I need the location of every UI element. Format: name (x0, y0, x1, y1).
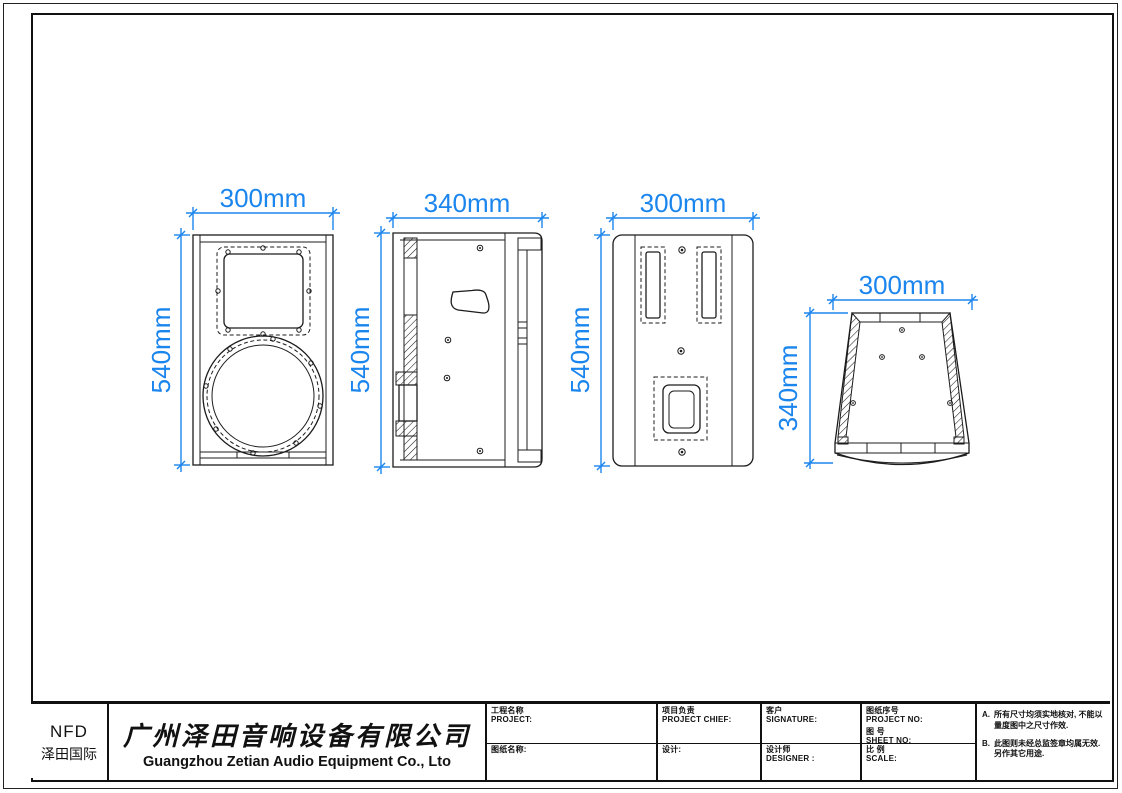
cabinet-drawing-canvas: 300mm 540mm (0, 0, 1122, 793)
back-height-label: 540mm (565, 307, 595, 394)
back-height-dimension: 540mm (565, 228, 610, 473)
side-width-dimension: 340mm (386, 188, 549, 228)
woofer-opening (203, 336, 323, 456)
logo-cell: NFD 泽田国际 (31, 704, 107, 781)
top-handle-recess (880, 313, 920, 322)
client-label-en: SIGNATURE: (766, 715, 856, 724)
title-block: NFD 泽田国际 广州泽田音响设备有限公司 Guangzhou Zetian A… (31, 701, 1110, 778)
bottom-screw-holes (851, 328, 953, 406)
design-label: 设计: (662, 745, 756, 754)
back-width-dimension: 300mm (606, 188, 760, 230)
front-width-dimension: 300mm (186, 183, 340, 230)
drawing-no-label-cn: 图纸序号 (866, 706, 971, 715)
drawing-name-label: 图纸名称: (491, 745, 652, 754)
designer-label-cn: 设计师 (766, 745, 856, 754)
number-cell: 图纸序号 PROJECT NO: 图 号 SHEET NO: 比 例 SCALE… (860, 704, 975, 781)
note-a-text: 所有尺寸均须实地核对, 不能以量度图中之尺寸作效. (994, 710, 1105, 732)
note-a: A. 所有尺寸均须实地核对, 不能以量度图中之尺寸作效. (982, 710, 1105, 732)
brand-name: NFD (50, 722, 88, 742)
horn-opening (216, 246, 311, 336)
back-width-label: 300mm (640, 188, 727, 218)
sheet-no-label-cn: 图 号 (866, 727, 971, 736)
back-view: 300mm 540mm (565, 188, 760, 473)
connector-plate (654, 377, 707, 440)
drawing-no-label-en: PROJECT NO: (866, 715, 971, 724)
port-slot-left (641, 247, 665, 323)
front-height-label: 540mm (146, 307, 176, 394)
curved-front-baffle (835, 443, 969, 463)
project-label-en: PROJECT: (491, 715, 652, 724)
front-view: 300mm 540mm (146, 183, 340, 472)
side-screw-holes (444, 245, 483, 454)
bottom-depth-dimension: 340mm (773, 307, 848, 469)
company-cell: 广州泽田音响设备有限公司 Guangzhou Zetian Audio Equi… (107, 704, 485, 781)
project-cell: 工程名称 PROJECT: 图纸名称: (485, 704, 656, 781)
bottom-depth-label: 340mm (773, 345, 803, 432)
front-width-label: 300mm (220, 183, 307, 213)
bottom-width-dimension: 300mm (827, 270, 978, 310)
chief-label-cn: 项目负责 (662, 706, 756, 715)
designer-label-en: DESIGNER : (766, 754, 856, 763)
side-width-label: 340mm (424, 188, 511, 218)
company-name-cn: 广州泽田音响设备有限公司 (123, 716, 471, 753)
back-screw-holes (678, 247, 685, 455)
chief-label-en: PROJECT CHIEF: (662, 715, 756, 724)
client-cell: 客户 SIGNATURE: 设计师 DESIGNER : (760, 704, 860, 781)
bottom-width-label: 300mm (859, 270, 946, 300)
side-height-dimension: 540mm (345, 226, 390, 474)
drawing-sheet: 300mm 540mm (0, 0, 1122, 793)
company-name-en: Guangzhou Zetian Audio Equipment Co., Lt… (143, 754, 451, 770)
front-height-dimension: 540mm (146, 228, 190, 472)
notes-cell: A. 所有尺寸均须实地核对, 不能以量度图中之尺寸作效. B. 此图则未经总监签… (975, 704, 1110, 781)
scale-label-en: SCALE: (866, 754, 971, 763)
port-slot-right (697, 247, 721, 323)
side-height-label: 540mm (345, 307, 375, 394)
bottom-view: 300mm 340mm (773, 270, 978, 469)
handle-cutout (451, 290, 489, 313)
side-view: 340mm 540mm (345, 188, 549, 474)
front-baffle-edge (505, 233, 541, 467)
note-b-text: 此图则未经总监签章均属无效. 另作其它用途. (994, 739, 1105, 761)
note-b: B. 此图则未经总监签章均属无效. 另作其它用途. (982, 739, 1105, 761)
client-label-cn: 客户 (766, 706, 856, 715)
chief-cell: 项目负责 PROJECT CHIEF: 设计: (656, 704, 760, 781)
brand-name-cn: 泽田国际 (41, 744, 97, 764)
scale-label-cn: 比 例 (866, 745, 971, 754)
project-label-cn: 工程名称 (491, 706, 652, 715)
back-wall-section (396, 238, 417, 460)
